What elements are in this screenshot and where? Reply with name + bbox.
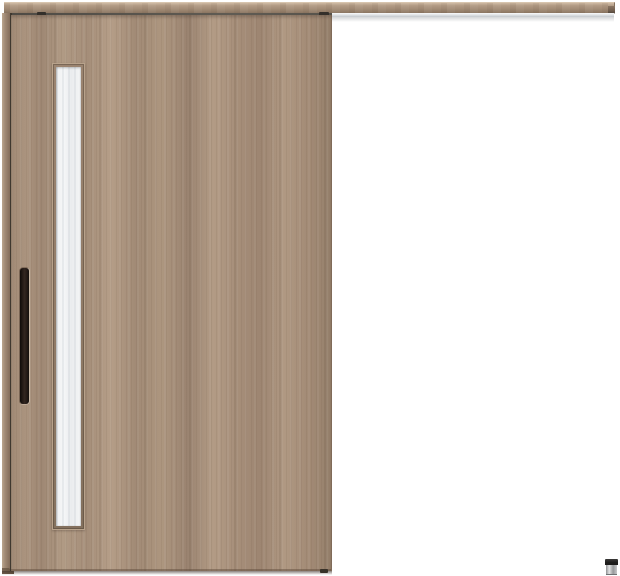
sliding-door-product-photo [0,0,620,576]
glass-window-frame [52,63,85,530]
rail-underside-shadow [332,17,614,22]
top-rail-fascia [4,2,615,13]
door-floor-shadow [2,571,332,575]
glass-pane [56,67,81,526]
floor-guide-body [606,565,617,575]
door-bottom-guide [320,569,328,573]
door-bar-handle [20,268,29,404]
